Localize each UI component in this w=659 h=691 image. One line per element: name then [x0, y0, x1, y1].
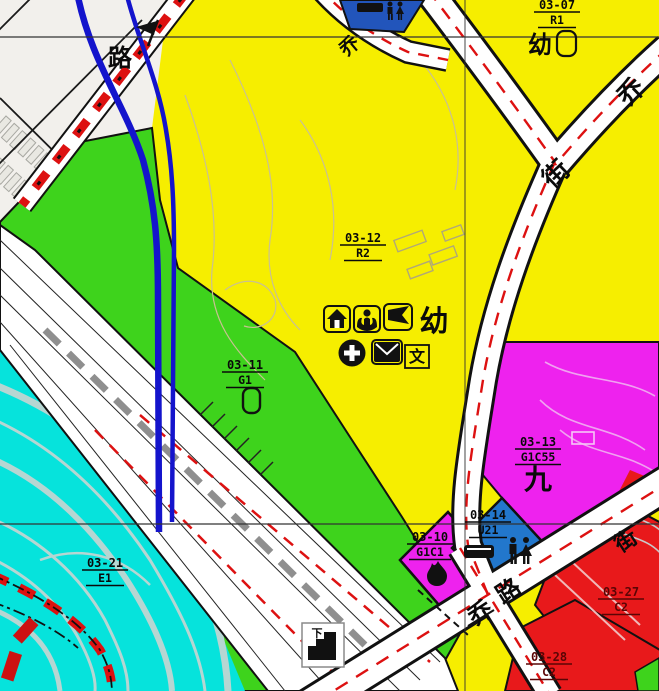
svg-text:03-11: 03-11	[227, 358, 263, 372]
svg-text:G1C55: G1C55	[521, 450, 556, 464]
svg-text:R1: R1	[550, 13, 564, 27]
svg-text:C2: C2	[614, 600, 628, 614]
envelope-icon	[374, 342, 400, 362]
svg-text:03-27: 03-27	[603, 585, 639, 599]
planning-map-canvas: 下 文 幼 幼 九	[0, 0, 659, 691]
svg-text:G1C1: G1C1	[416, 545, 444, 559]
parcel-label-03-13: 03-13 G1C55	[515, 435, 561, 465]
svg-text:U21: U21	[478, 523, 499, 537]
kindergarten-label-main: 幼	[419, 304, 448, 338]
svg-text:C2: C2	[542, 665, 556, 679]
underpass-label: 下	[312, 627, 323, 640]
svg-text:R2: R2	[356, 246, 370, 260]
bus-icon	[464, 545, 494, 558]
svg-text:G1: G1	[238, 373, 252, 387]
svg-text:03-13: 03-13	[520, 435, 556, 449]
road-name-lu-top-left: 路	[108, 44, 133, 72]
culture-label: 文	[409, 347, 426, 366]
nine-label: 九	[524, 463, 552, 496]
underpass-stairs-icon: 下	[302, 623, 344, 667]
svg-text:E1: E1	[98, 571, 112, 585]
kindergarten-label-north: 幼	[528, 31, 552, 59]
hospital-cross-icon	[339, 340, 366, 367]
svg-text:03-12: 03-12	[345, 231, 381, 245]
svg-text:03-07: 03-07	[539, 0, 575, 12]
svg-text:03-21: 03-21	[87, 556, 123, 570]
svg-text:03-10: 03-10	[412, 530, 448, 544]
svg-text:03-28: 03-28	[531, 650, 567, 664]
svg-text:03-14: 03-14	[470, 508, 506, 522]
